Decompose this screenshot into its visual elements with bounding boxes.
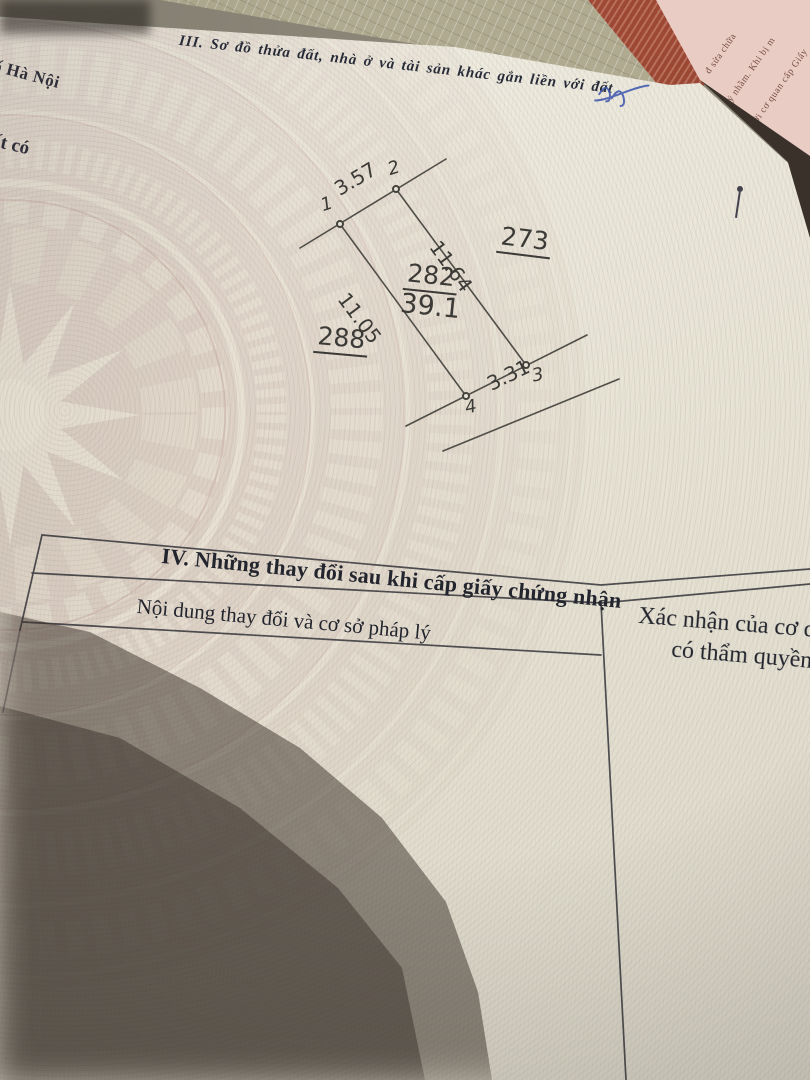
- land-certificate-photo: đ sửa chữa ý nhầm. Khi bị m o với cơ qua…: [0, 0, 810, 1080]
- section-4-table-lines: [0, 0, 810, 1080]
- pink-page-text-line: đ sửa chữa: [704, 32, 739, 76]
- certificate-sheet: ố Hà Nội ất có III. Sơ đồ thửa đất, nhà …: [0, 0, 810, 1080]
